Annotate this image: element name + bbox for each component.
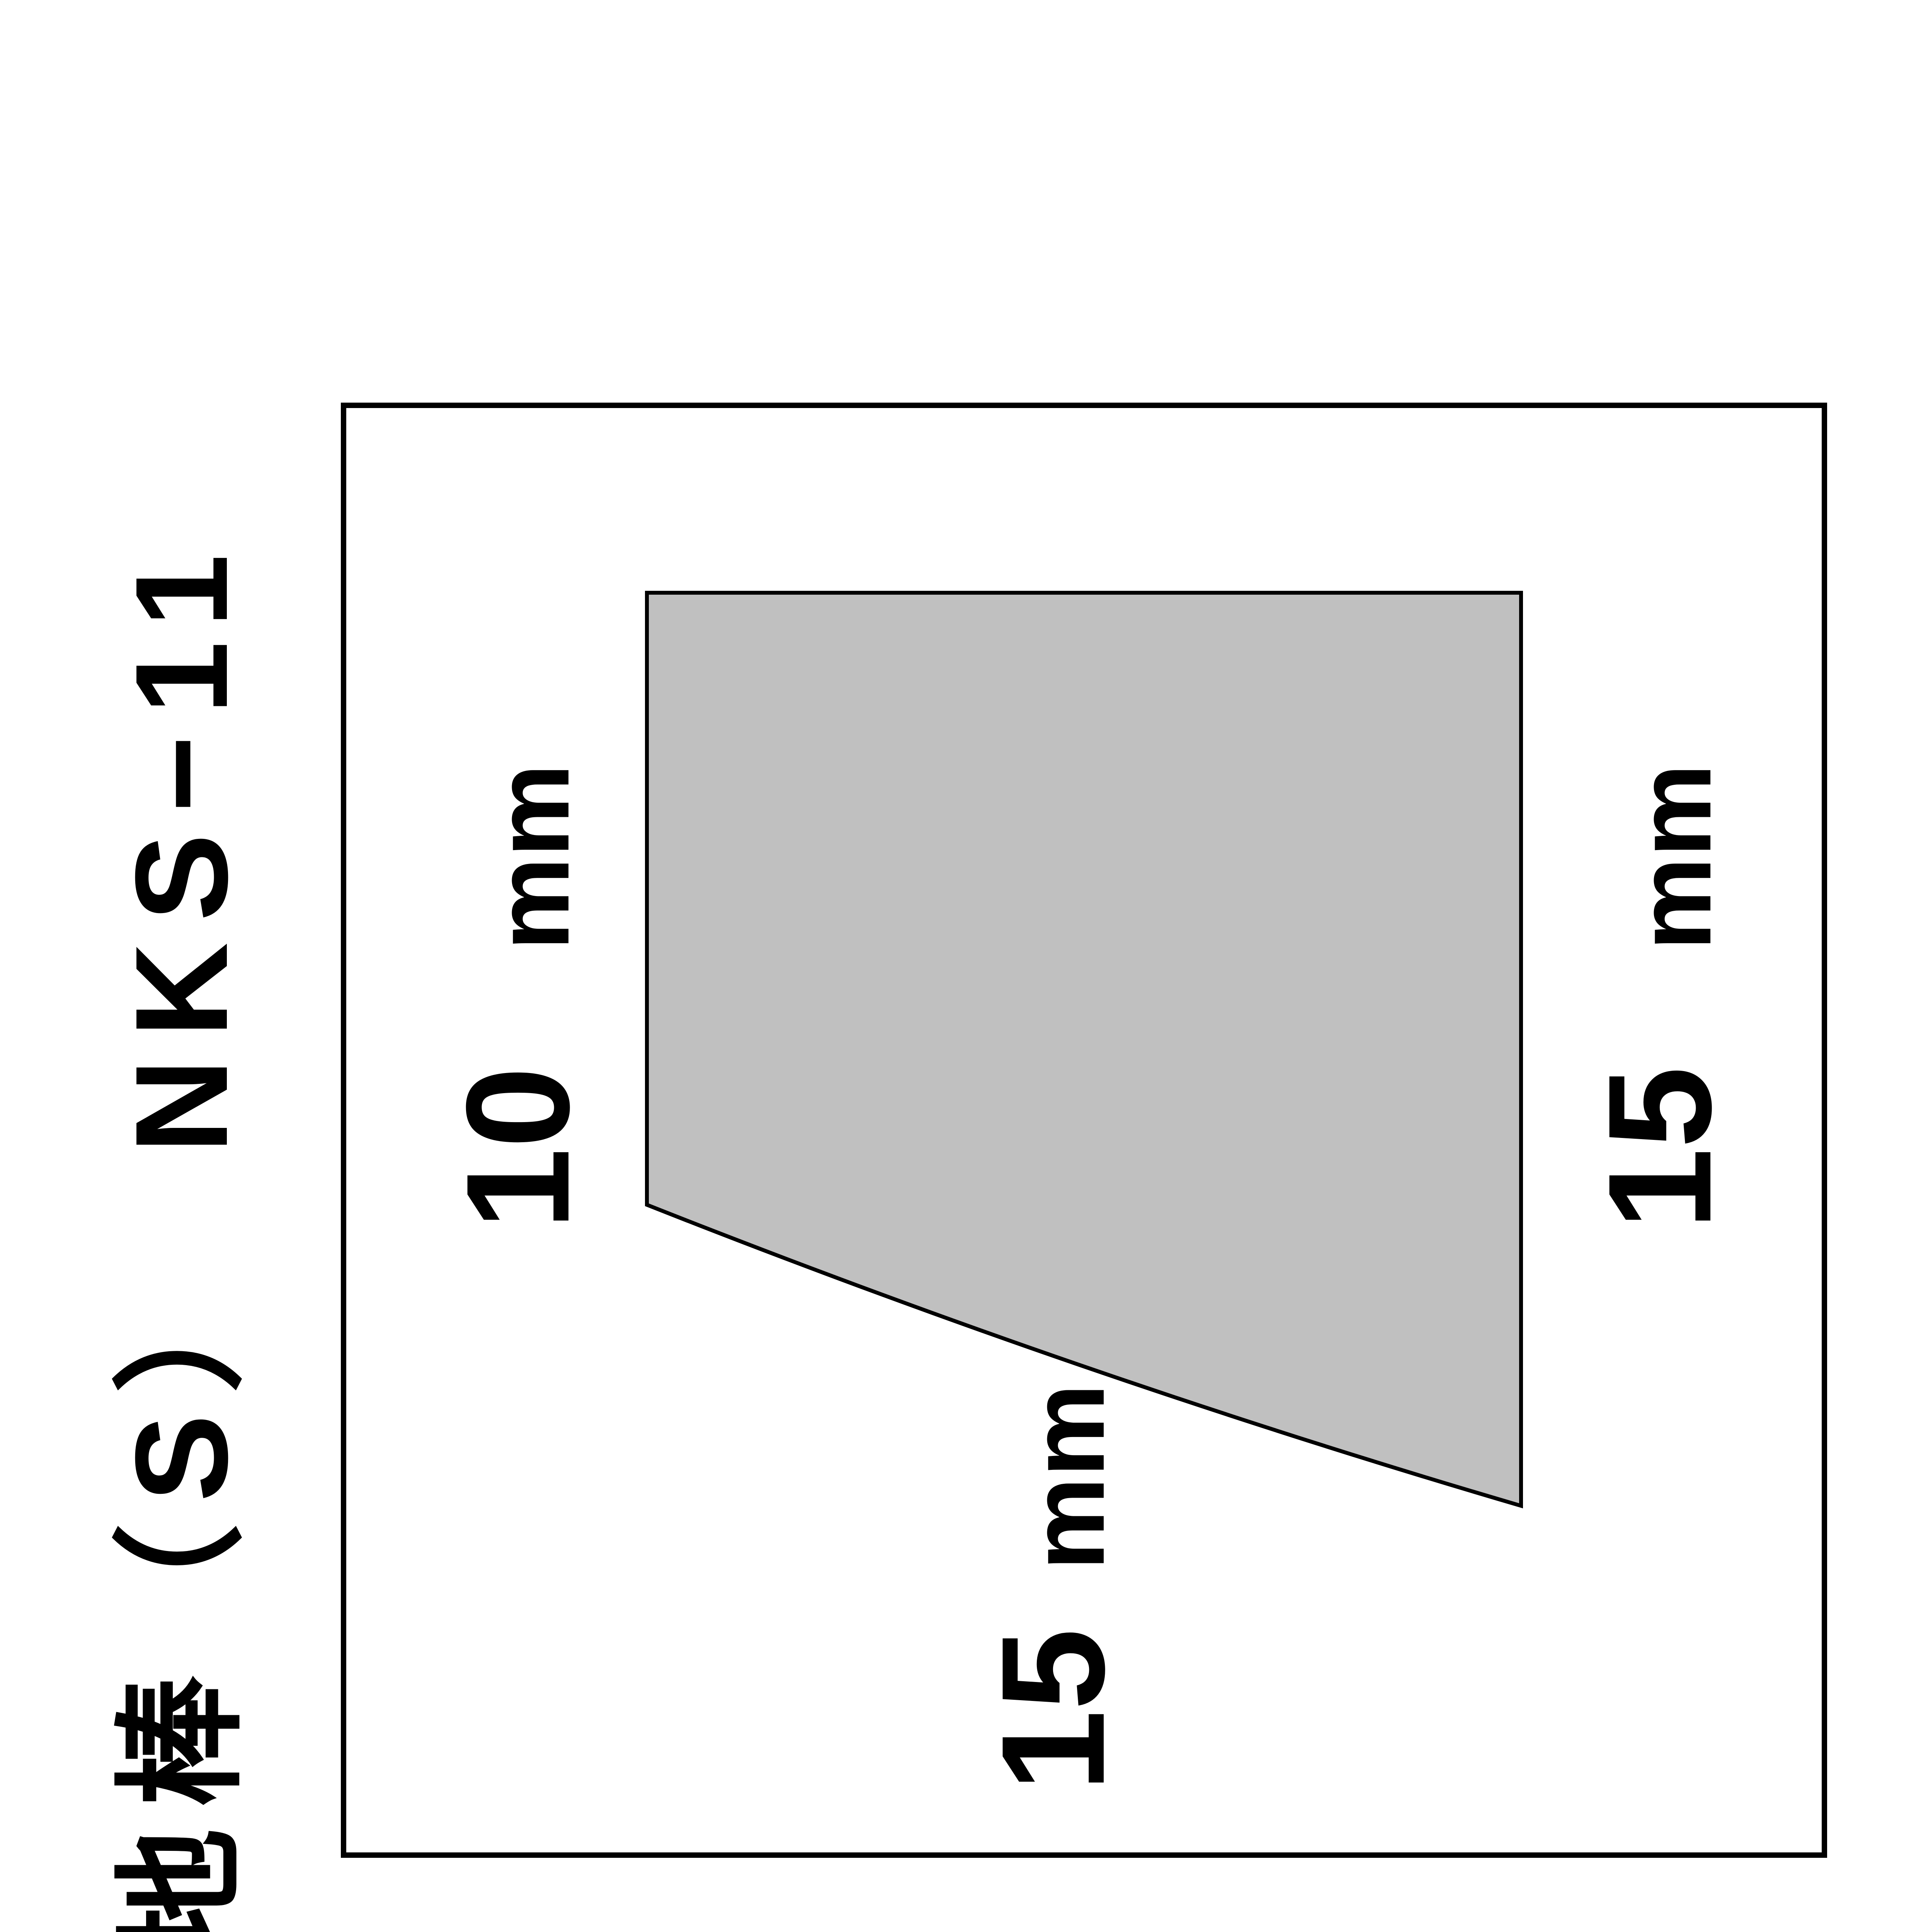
document-page: 軟質目地棒（S） NKS−11 10 mm 15 mm 15 mm 定尺2m: [0, 0, 1916, 1932]
dimension-unit: mm: [1622, 764, 1727, 951]
dimension-unit: mm: [1015, 1384, 1120, 1571]
dimension-unit: mm: [480, 764, 585, 951]
rotated-landscape-sheet: 軟質目地棒（S） NKS−11 10 mm 15 mm 15 mm 定尺2m: [0, 0, 1916, 1932]
dimension-top-width: 10 mm: [444, 764, 591, 1241]
dimension-value: 15: [980, 1628, 1126, 1792]
dimension-value: 15: [1586, 1066, 1733, 1241]
dimension-value: 10: [444, 1066, 591, 1241]
dimension-bottom-width: 15 mm: [1586, 764, 1733, 1241]
cross-section-shape: [647, 593, 1521, 1506]
dimension-side-height: 15 mm: [980, 1384, 1126, 1792]
